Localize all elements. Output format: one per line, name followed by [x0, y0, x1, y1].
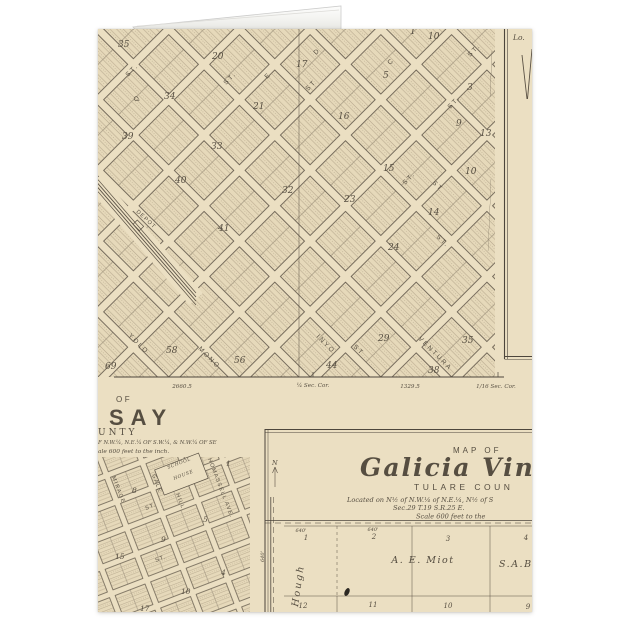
survey-corner: 1/16 Sec. Cor. — [476, 384, 516, 390]
block-number: 1 — [410, 29, 416, 37]
block-number: 33 — [211, 142, 223, 152]
lot-number: 3 — [446, 535, 451, 543]
block-number: 23 — [343, 195, 356, 205]
north-label: N — [271, 459, 278, 467]
block-number: 20 — [211, 52, 224, 62]
block-number: 15 — [115, 552, 125, 561]
block-number: 40 — [174, 176, 187, 186]
location-description: F N.W.¼, N.E.¼ OF S.W.¼, & N.W.¼ OF SE — [98, 439, 217, 446]
block-number: 34 — [164, 92, 176, 102]
block-number: 56 — [234, 356, 246, 366]
block-number: 35 — [118, 40, 130, 50]
lot-number: 11 — [369, 601, 378, 609]
lot-number: 10 — [444, 602, 453, 610]
lot-number: 4 — [523, 534, 528, 542]
block-number: 10 — [181, 587, 191, 596]
lot-number: 2 — [371, 533, 377, 541]
location-description: Located on N½ of N.W.¼ of N.E.¼, N½ of S — [346, 496, 494, 504]
block-number: 8 — [132, 486, 137, 495]
county-fragment: UNTY — [98, 428, 137, 438]
survey-distance: 1329.5 — [400, 384, 420, 390]
owner-name: S.A.BI — [499, 559, 532, 570]
block-number: 17 — [296, 60, 308, 70]
block-number: 14 — [428, 208, 440, 218]
block-number: 15 — [383, 164, 395, 174]
block-number: 1 — [226, 459, 231, 468]
block-number: 24 — [387, 243, 400, 253]
block-number: 44 — [325, 361, 338, 371]
block-number: 21 — [252, 102, 264, 112]
cropped-text-fragment: Lo. — [512, 33, 525, 42]
block-number: 35 — [462, 336, 474, 346]
owner-name: A. E. Miot — [390, 555, 454, 566]
lot-number: 9 — [526, 603, 531, 611]
block-number: 39 — [122, 132, 134, 142]
block-number: 9 — [161, 535, 166, 544]
county-label: TULARE COUN — [414, 482, 513, 492]
galicia-title: Galicia Vine — [360, 453, 532, 482]
block-number: 41 — [217, 224, 229, 234]
lot-number: 12 — [299, 602, 308, 610]
fold-wedge — [133, 6, 341, 30]
block-number: 69 — [105, 362, 117, 372]
survey-distance: 2660.5 — [171, 384, 192, 390]
block-number: 32 — [282, 186, 294, 196]
block-number: 58 — [166, 346, 178, 356]
survey-corner: ¼ Sec. Cor. — [297, 382, 330, 389]
greeting-card-front: ST. Q ST. E D ST C ST. ST. ST. YOLO MONO… — [98, 29, 532, 612]
block-number: 9 — [456, 119, 462, 129]
section-description: Sec.29 T.19 S.R.25 E. — [393, 504, 465, 512]
lindsay-title-fragment: SAY — [109, 405, 173, 430]
block-number: 10 — [465, 167, 477, 177]
block-number: 17 — [140, 604, 150, 612]
road-dimension: 640' — [260, 551, 266, 562]
block-number: 5 — [383, 71, 389, 81]
block-number: 13 — [480, 129, 492, 139]
scale-note: Scale 600 feet to the — [416, 513, 486, 521]
atlas-page: ST. Q ST. E D ST C ST. ST. ST. YOLO MONO… — [98, 29, 532, 612]
block-number: 16 — [338, 112, 350, 122]
block-number: 3 — [467, 83, 473, 93]
block-number: 4 — [220, 568, 226, 577]
lot-number: 1 — [304, 534, 308, 542]
scale-note: ale 600 feet to the inch. — [98, 449, 169, 455]
card-fold-back — [88, 0, 350, 32]
product-scene: ST. Q ST. E D ST C ST. ST. ST. YOLO MONO… — [0, 0, 644, 644]
block-number: 5 — [203, 515, 208, 524]
street-grid — [98, 29, 495, 377]
block-number: 29 — [377, 334, 390, 344]
main-town-plat: ST. Q ST. E D ST C ST. ST. ST. YOLO MONO… — [98, 29, 516, 390]
lindsay-inset-map: SCHOOL HOUSE MIRAGE GALE HILL HOMASSELL … — [98, 453, 250, 612]
block-number: 38 — [428, 366, 440, 376]
block-number: 10 — [428, 32, 440, 42]
map-of-fragment: OF — [116, 395, 132, 404]
